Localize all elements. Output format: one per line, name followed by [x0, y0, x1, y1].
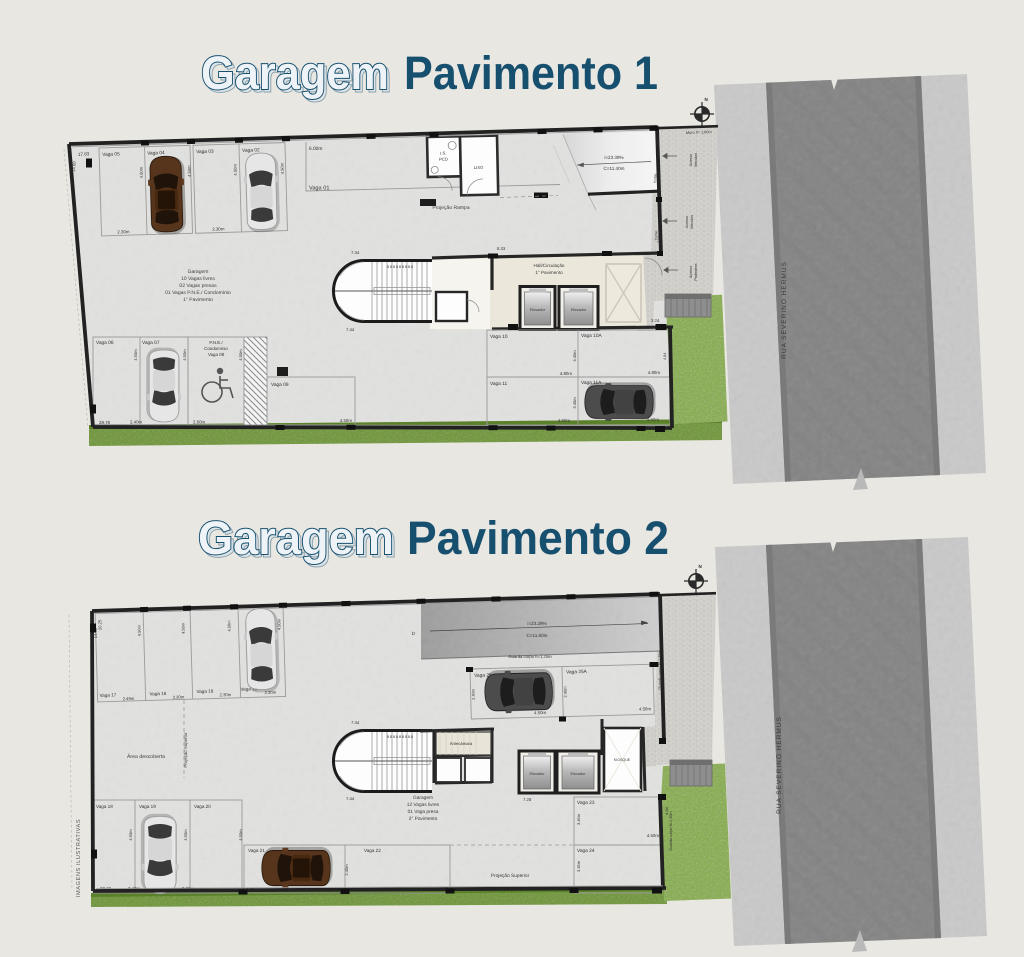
svg-text:I.S.: I.S. — [440, 151, 446, 156]
svg-text:6.00m: 6.00m — [309, 146, 322, 152]
svg-text:Pavimento 2: Pavimento 2 — [407, 511, 669, 564]
svg-text:Vaga 10A: Vaga 10A — [581, 333, 603, 339]
svg-text:01 Vagas P.N.E./ Condomínio: 01 Vagas P.N.E./ Condomínio — [165, 290, 231, 296]
svg-text:C=11.60m: C=11.60m — [527, 633, 548, 638]
svg-text:P.N.E./: P.N.E./ — [209, 340, 223, 345]
svg-text:3.00: 3.00 — [656, 138, 660, 146]
svg-text:2.60m: 2.60m — [193, 420, 206, 425]
svg-text:Garagem: Garagem — [188, 269, 209, 275]
svg-text:Acesso: Acesso — [689, 154, 693, 166]
svg-text:Guarda corpo h=1,20m: Guarda corpo h=1,20m — [508, 654, 552, 659]
svg-text:Vaga 22: Vaga 22 — [364, 848, 381, 853]
svg-text:Vaga 18: Vaga 18 — [96, 804, 113, 809]
svg-text:4.50m: 4.50m — [187, 165, 192, 177]
svg-text:Garagem: Garagem — [413, 795, 433, 801]
svg-text:1° Pavimento: 1° Pavimento — [535, 270, 563, 275]
svg-text:Área descoberta: Área descoberta — [127, 753, 165, 760]
svg-text:4.50m: 4.50m — [558, 418, 571, 423]
svg-text:4.50m: 4.50m — [534, 710, 547, 715]
svg-text:02 Vagas presas: 02 Vagas presas — [179, 283, 217, 289]
svg-text:Projeção Superior: Projeção Superior — [183, 732, 188, 768]
svg-text:7.44: 7.44 — [346, 796, 355, 801]
svg-text:2.30m: 2.30m — [212, 226, 225, 231]
svg-text:17.83: 17.83 — [78, 151, 90, 157]
svg-text:Veículos: Veículos — [690, 215, 694, 229]
svg-text:IMAGENS ILUSTRATIVAS: IMAGENS ILUSTRATIVAS — [76, 819, 82, 897]
svg-text:Vaga 08: Vaga 08 — [208, 352, 225, 357]
svg-text:2.40m: 2.40m — [344, 864, 349, 876]
svg-text:12 Vagas livres: 12 Vagas livres — [407, 802, 440, 808]
svg-text:4.50m: 4.50m — [647, 833, 660, 838]
svg-text:LIXO: LIXO — [474, 165, 484, 170]
svg-text:4.00m: 4.00m — [238, 349, 243, 361]
svg-text:3.40m: 3.40m — [572, 397, 577, 409]
svg-text:Vaga 23: Vaga 23 — [577, 800, 595, 806]
svg-text:4.50m: 4.50m — [182, 349, 187, 361]
svg-text:7.44: 7.44 — [346, 327, 355, 332]
svg-text:i=23.28%: i=23.28% — [527, 621, 546, 626]
svg-text:Vaga 04: Vaga 04 — [147, 150, 165, 157]
svg-text:Vaga 05: Vaga 05 — [102, 151, 120, 158]
svg-text:8 8 8 8 8 8 8 8 8: 8 8 8 8 8 8 8 8 8 — [387, 735, 413, 739]
svg-text:RUA SEVERINO HERMUS: RUA SEVERINO HERMUS — [776, 716, 783, 814]
svg-text:3.45m: 3.45m — [576, 860, 581, 872]
svg-text:01 Vaga presa: 01 Vaga presa — [408, 809, 439, 815]
svg-text:Vaga 21: Vaga 21 — [248, 848, 265, 853]
svg-text:2.49m: 2.49m — [123, 696, 135, 701]
svg-text:4.50m: 4.50m — [180, 622, 185, 634]
svg-text:Vaga 20: Vaga 20 — [194, 804, 211, 809]
svg-text:i=23.38%: i=23.38% — [604, 155, 623, 160]
svg-text:Pavimento 1: Pavimento 1 — [404, 46, 658, 99]
svg-text:Elevador: Elevador — [530, 772, 546, 776]
svg-text:Hall/Circulação: Hall/Circulação — [534, 263, 565, 268]
svg-text:C=11.40m: C=11.40m — [604, 166, 625, 171]
svg-text:Elevador: Elevador — [571, 308, 587, 312]
svg-text:Vaga 25A: Vaga 25A — [566, 669, 588, 676]
svg-text:7.34: 7.34 — [351, 720, 360, 725]
svg-text:Guarda corpo h=1,30m: Guarda corpo h=1,30m — [658, 650, 662, 689]
svg-text:2° Pavimento: 2° Pavimento — [409, 816, 438, 822]
svg-text:Vaga 01: Vaga 01 — [309, 186, 329, 192]
svg-text:4.50m: 4.50m — [136, 624, 141, 636]
svg-text:4.50m: 4.50m — [639, 706, 652, 711]
svg-text:Vaga 19: Vaga 19 — [139, 804, 156, 809]
svg-text:KIOSQUE: KIOSQUE — [614, 758, 631, 762]
svg-text:4.50m: 4.50m — [139, 166, 144, 178]
svg-text:10 Vagas livres: 10 Vagas livres — [181, 276, 215, 282]
svg-text:Antecâmara: Antecâmara — [450, 741, 473, 746]
svg-text:Projeção Rampa: Projeção Rampa — [432, 205, 469, 211]
svg-text:4.50m: 4.50m — [238, 829, 243, 841]
svg-text:Vaga 24: Vaga 24 — [577, 848, 595, 854]
svg-text:Vaga 17: Vaga 17 — [99, 692, 116, 698]
svg-text:4.50m: 4.50m — [279, 162, 284, 174]
svg-text:2.30m: 2.30m — [219, 692, 231, 697]
svg-text:Vaga 06: Vaga 06 — [96, 340, 114, 346]
svg-text:Vaga 10: Vaga 10 — [490, 334, 508, 340]
svg-text:4.50m: 4.50m — [226, 620, 231, 632]
svg-text:Vaga 11: Vaga 11 — [490, 381, 507, 387]
svg-text:7.34: 7.34 — [351, 250, 360, 255]
svg-text:2.40m: 2.40m — [130, 420, 143, 425]
svg-text:3.24: 3.24 — [651, 318, 660, 323]
svg-text:1° Pavimento: 1° Pavimento — [183, 297, 213, 303]
svg-text:Condomínio: Condomínio — [204, 346, 228, 351]
svg-text:Projeção Superior: Projeção Superior — [491, 873, 530, 879]
svg-text:Acesso: Acesso — [689, 266, 693, 278]
svg-text:14.60: 14.60 — [71, 161, 77, 172]
svg-text:3.40m: 3.40m — [572, 350, 577, 362]
svg-text:Pedestres: Pedestres — [694, 263, 698, 280]
svg-text:Vaga 18: Vaga 18 — [196, 689, 213, 695]
svg-text:PCD: PCD — [439, 157, 448, 162]
svg-text:4.80m: 4.80m — [560, 371, 573, 376]
svg-text:20.25: 20.25 — [97, 619, 102, 630]
svg-text:4.50m: 4.50m — [183, 829, 188, 841]
svg-text:4.50m: 4.50m — [233, 163, 238, 175]
svg-text:3.45m: 3.45m — [576, 813, 581, 825]
svg-text:4.50m: 4.50m — [128, 829, 133, 841]
svg-text:4.80m: 4.80m — [648, 370, 661, 375]
svg-text:Guarda corpo h=1,30m: Guarda corpo h=1,30m — [669, 811, 673, 850]
svg-text:Garagem: Garagem — [198, 511, 394, 564]
svg-text:Vaga 07: Vaga 07 — [142, 340, 160, 346]
svg-text:3.00: 3.00 — [657, 236, 661, 244]
svg-text:Elevador: Elevador — [571, 772, 587, 776]
svg-text:4.84: 4.84 — [663, 353, 667, 361]
svg-text:Portão: Portão — [653, 173, 657, 183]
svg-text:4.50m: 4.50m — [133, 349, 138, 361]
svg-text:Vaga 16: Vaga 16 — [149, 691, 166, 697]
svg-text:8 8 8 8 8 8 8 8 8: 8 8 8 8 8 8 8 8 8 — [387, 265, 413, 269]
svg-text:Acesso: Acesso — [685, 216, 689, 228]
svg-text:8.33: 8.33 — [497, 246, 506, 251]
svg-text:Vaga 09: Vaga 09 — [271, 382, 289, 388]
svg-text:Veículos: Veículos — [694, 153, 698, 167]
svg-text:Elevador: Elevador — [530, 308, 546, 312]
svg-text:2.40m: 2.40m — [562, 686, 567, 698]
svg-text:7.28: 7.28 — [523, 797, 532, 802]
svg-text:Garagem: Garagem — [201, 46, 389, 99]
svg-text:RUA SEVERINO HERMUS: RUA SEVERINO HERMUS — [781, 261, 788, 359]
svg-text:Vaga 03: Vaga 03 — [196, 149, 214, 156]
svg-text:4.50m: 4.50m — [340, 418, 353, 423]
svg-text:2.30m: 2.30m — [117, 229, 130, 234]
svg-text:3.30m: 3.30m — [173, 694, 185, 699]
svg-text:2.40m: 2.40m — [471, 688, 476, 700]
